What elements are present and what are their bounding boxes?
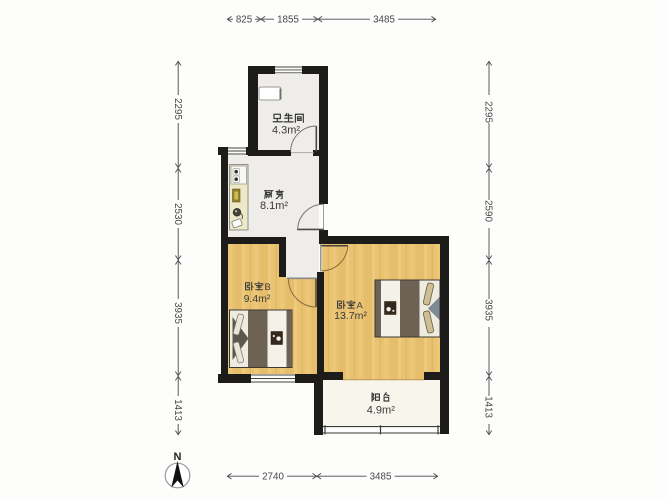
svg-text:825: 825	[236, 15, 253, 26]
svg-text:2530: 2530	[172, 203, 183, 225]
svg-text:3935: 3935	[483, 299, 494, 321]
svg-text:4.3m²: 4.3m²	[272, 125, 300, 137]
svg-text:B: B	[265, 282, 271, 293]
svg-text:3485: 3485	[370, 472, 392, 483]
svg-text:2740: 2740	[262, 472, 284, 483]
svg-text:4.9m²: 4.9m²	[367, 404, 395, 416]
svg-text:2295: 2295	[172, 98, 183, 120]
svg-text:1413: 1413	[483, 396, 494, 418]
svg-text:N: N	[174, 451, 182, 463]
svg-text:1413: 1413	[172, 399, 183, 421]
svg-text:13.7m²: 13.7m²	[334, 310, 367, 322]
svg-text:8.1m²: 8.1m²	[260, 200, 288, 212]
svg-text:3935: 3935	[172, 302, 183, 324]
svg-text:2590: 2590	[483, 200, 494, 222]
svg-text:1855: 1855	[277, 15, 299, 26]
svg-text:2295: 2295	[483, 101, 494, 123]
svg-text:9.4m²: 9.4m²	[244, 293, 271, 305]
svg-text:3485: 3485	[373, 15, 395, 26]
